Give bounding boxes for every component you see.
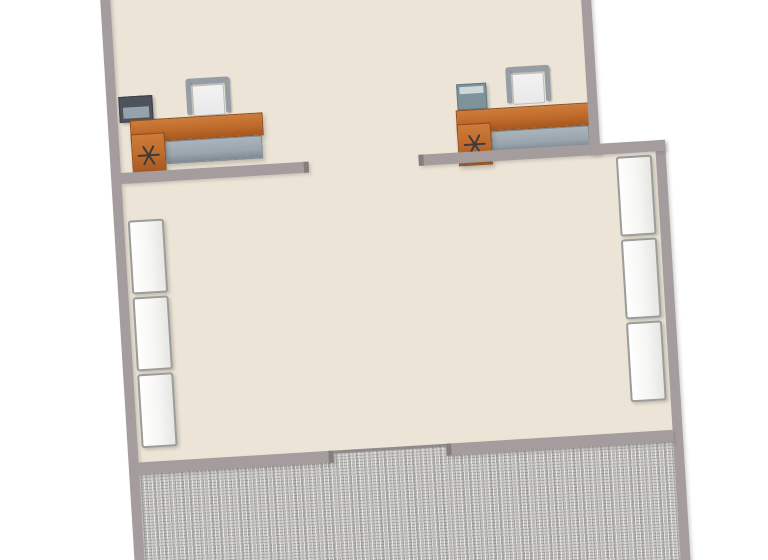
- wall-unit-right-2: [621, 237, 662, 319]
- office-chair-right: [505, 65, 551, 106]
- wall-end-cap: [418, 155, 424, 166]
- wall-end-cap: [304, 162, 310, 173]
- floor-plan: [100, 0, 698, 560]
- chair-seat: [512, 72, 546, 105]
- chair-seat: [192, 84, 226, 117]
- main-room-floor: [121, 140, 673, 464]
- wall-end-cap: [446, 443, 452, 455]
- office-chair-left: [185, 76, 231, 117]
- tv-highlight-icon: [459, 86, 483, 94]
- floorplan-canvas: [0, 0, 768, 560]
- wall-unit-left-2: [132, 295, 172, 371]
- wall-unit-right-1: [616, 155, 657, 237]
- wall-unit-left-3: [137, 372, 177, 448]
- wall-unit-right-3: [626, 320, 667, 402]
- monitor-screen-icon: [123, 106, 150, 119]
- wall-unit-left-1: [128, 219, 168, 295]
- tv-box-right: [456, 83, 488, 111]
